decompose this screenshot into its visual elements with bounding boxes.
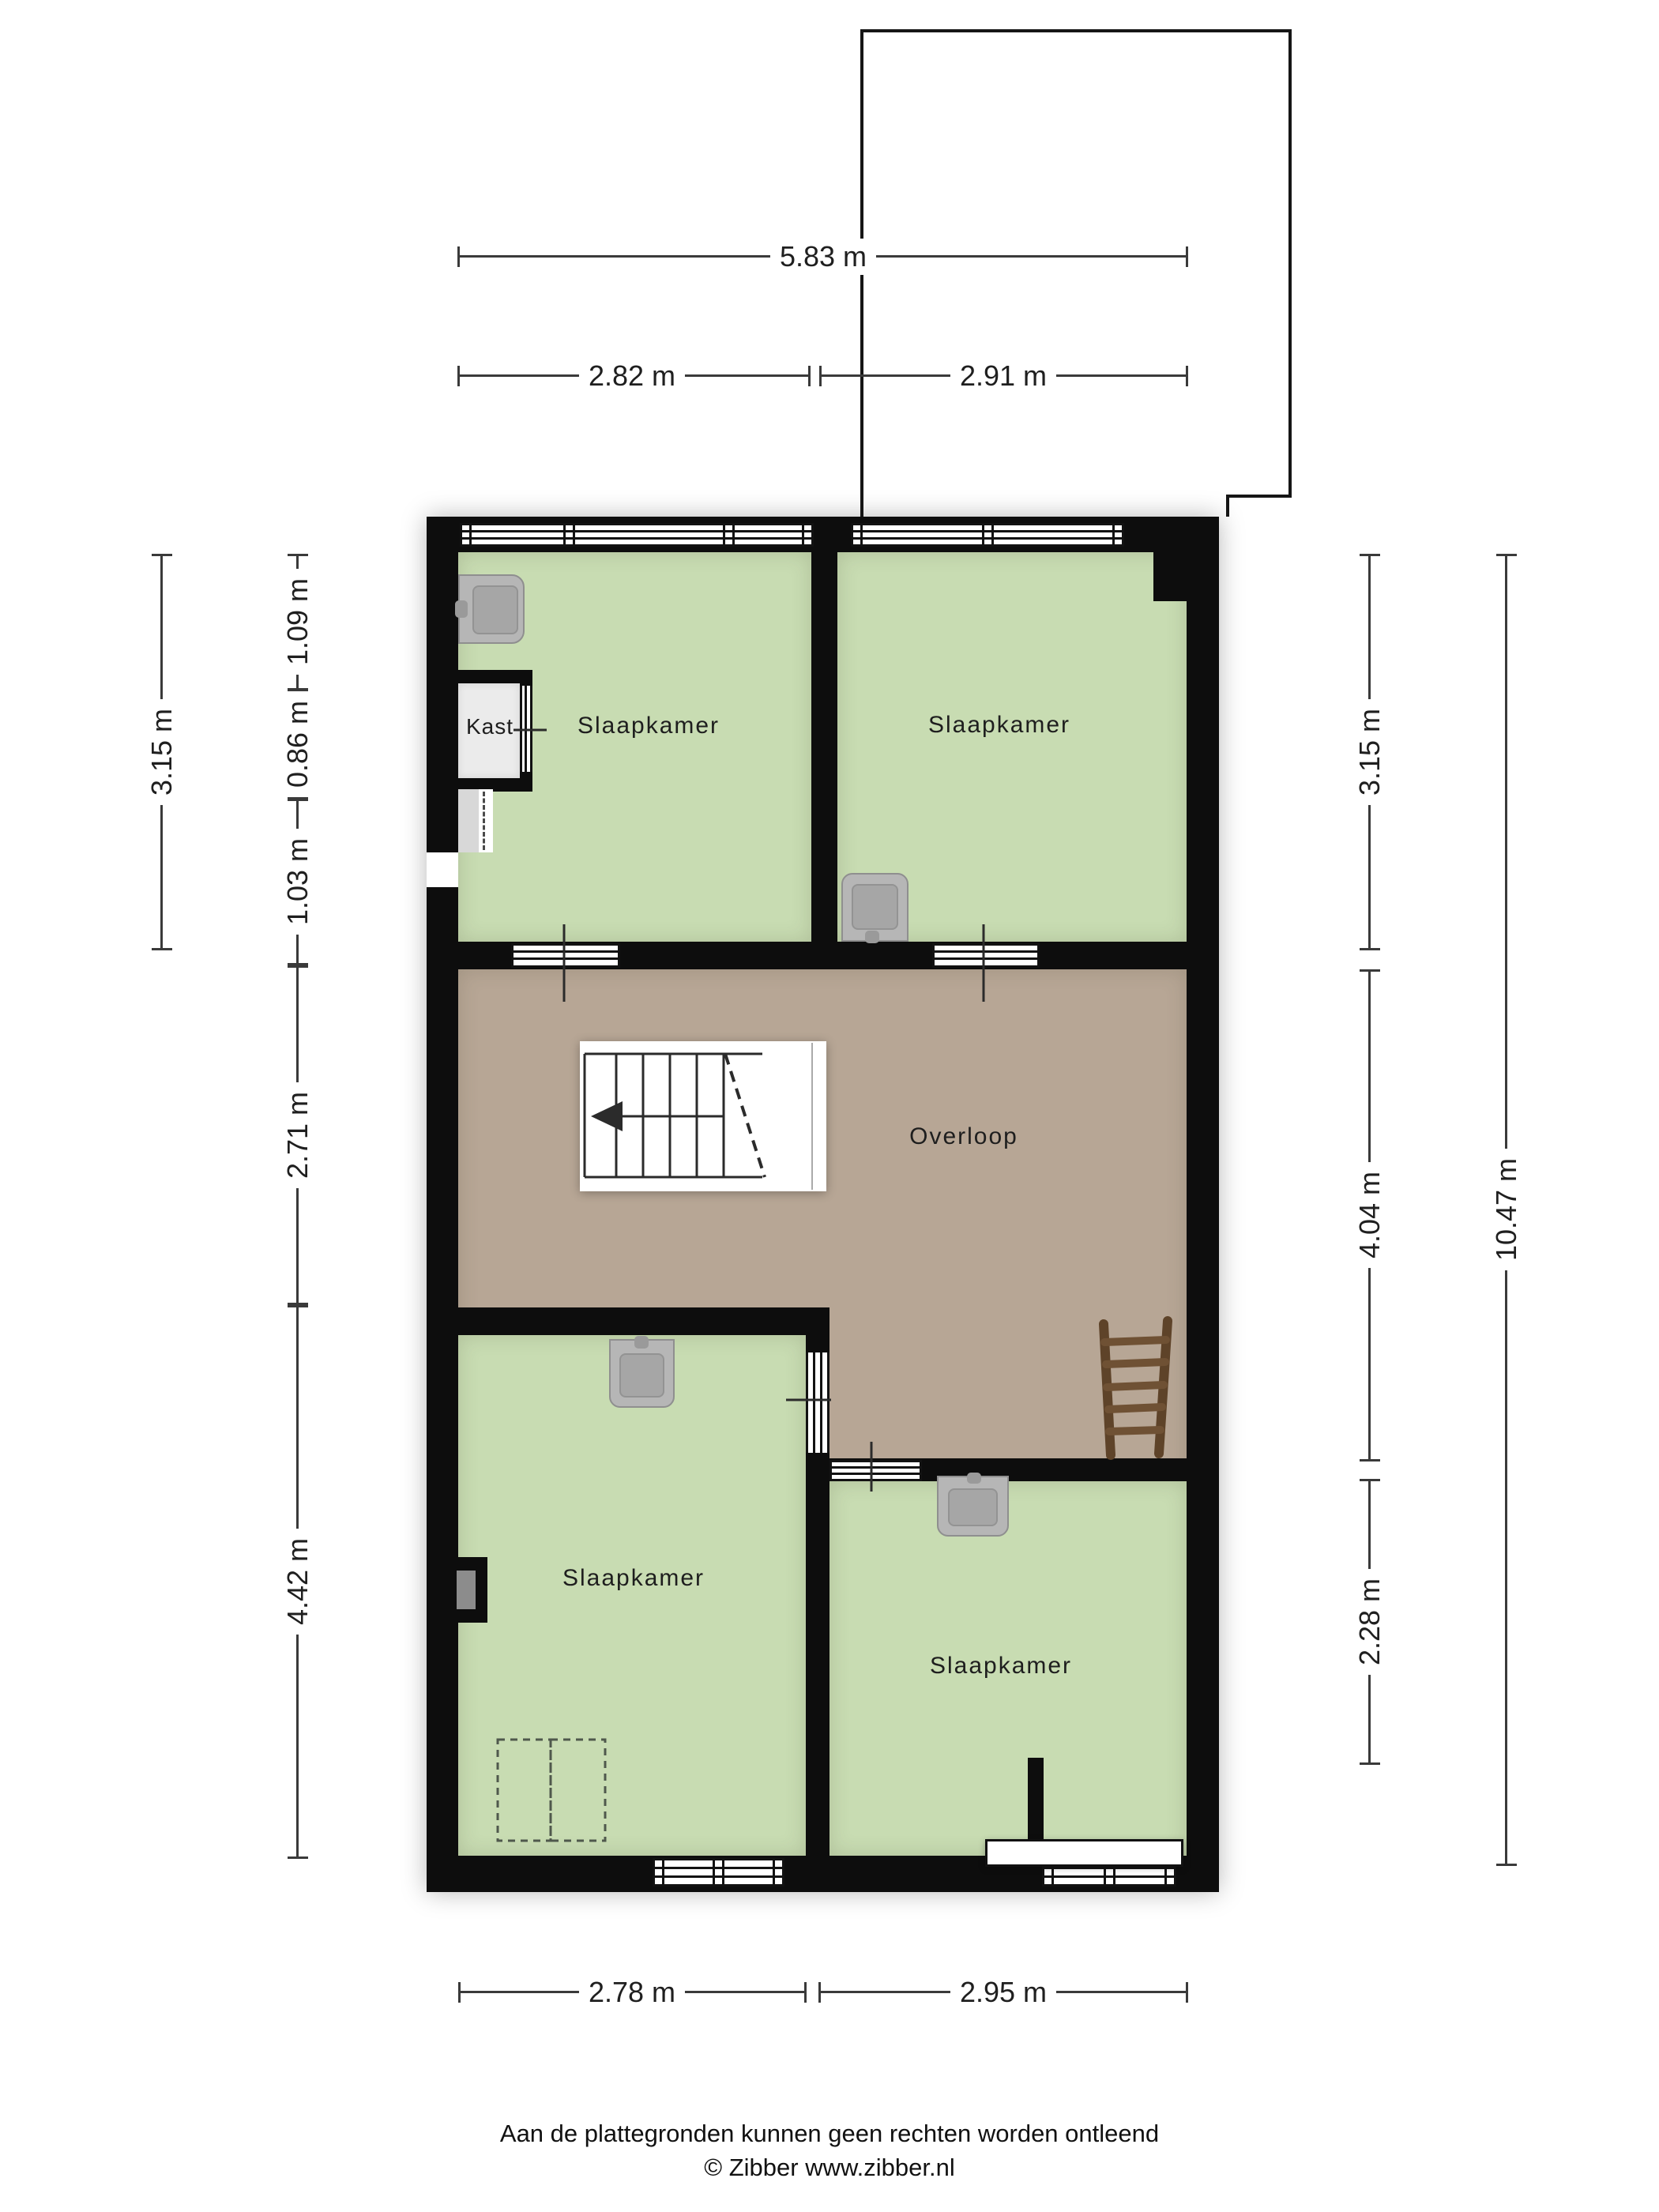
- dim-label-right-1: 3.15 m: [1352, 699, 1388, 805]
- floor-plan-page: Slaapkamer Slaapkamer Slaapkamer Slaapka…: [0, 0, 1659, 2212]
- dim-label-right-2: 4.04 m: [1352, 1162, 1388, 1268]
- dim-label-top-left: 2.82 m: [579, 358, 685, 394]
- dim-label-bottom-left: 2.78 m: [579, 1974, 685, 2011]
- label-bedroom-top-left: Slaapkamer: [577, 713, 720, 739]
- dim-label-left-2: 0.86 m: [280, 691, 316, 797]
- dim-label-right-outer: 10.47 m: [1488, 1149, 1525, 1270]
- disclaimer-text: Aan de plattegronden kunnen geen rechten…: [0, 2120, 1659, 2148]
- dim-label-left-5: 4.42 m: [280, 1529, 316, 1635]
- dim-label-top-total: 5.83 m: [770, 239, 876, 275]
- dim-label-top-right: 2.91 m: [950, 358, 1056, 394]
- label-bedroom-top-right: Slaapkamer: [928, 712, 1070, 739]
- dim-label-left-1: 1.09 m: [280, 569, 316, 675]
- loft-ladder-icon: [1104, 1321, 1168, 1455]
- bed-outline: [498, 1740, 605, 1841]
- dim-label-right-3: 2.28 m: [1352, 1569, 1388, 1675]
- dim-label-left-outer: 3.15 m: [144, 699, 180, 805]
- label-bedroom-bottom-right: Slaapkamer: [930, 1653, 1072, 1680]
- stairs-arrowhead: [591, 1101, 623, 1131]
- dim-label-left-3: 1.03 m: [280, 829, 316, 935]
- linework-layer: [0, 0, 1659, 2212]
- roof-outline: [862, 31, 1290, 517]
- label-landing: Overloop: [909, 1123, 1018, 1150]
- label-bedroom-bottom-left: Slaapkamer: [562, 1565, 705, 1592]
- dim-label-left-4: 2.71 m: [280, 1082, 316, 1188]
- copyright-text: © Zibber www.zibber.nl: [0, 2154, 1659, 2182]
- dim-label-bottom-right: 2.95 m: [950, 1974, 1056, 2011]
- label-closet: Kast: [466, 714, 513, 739]
